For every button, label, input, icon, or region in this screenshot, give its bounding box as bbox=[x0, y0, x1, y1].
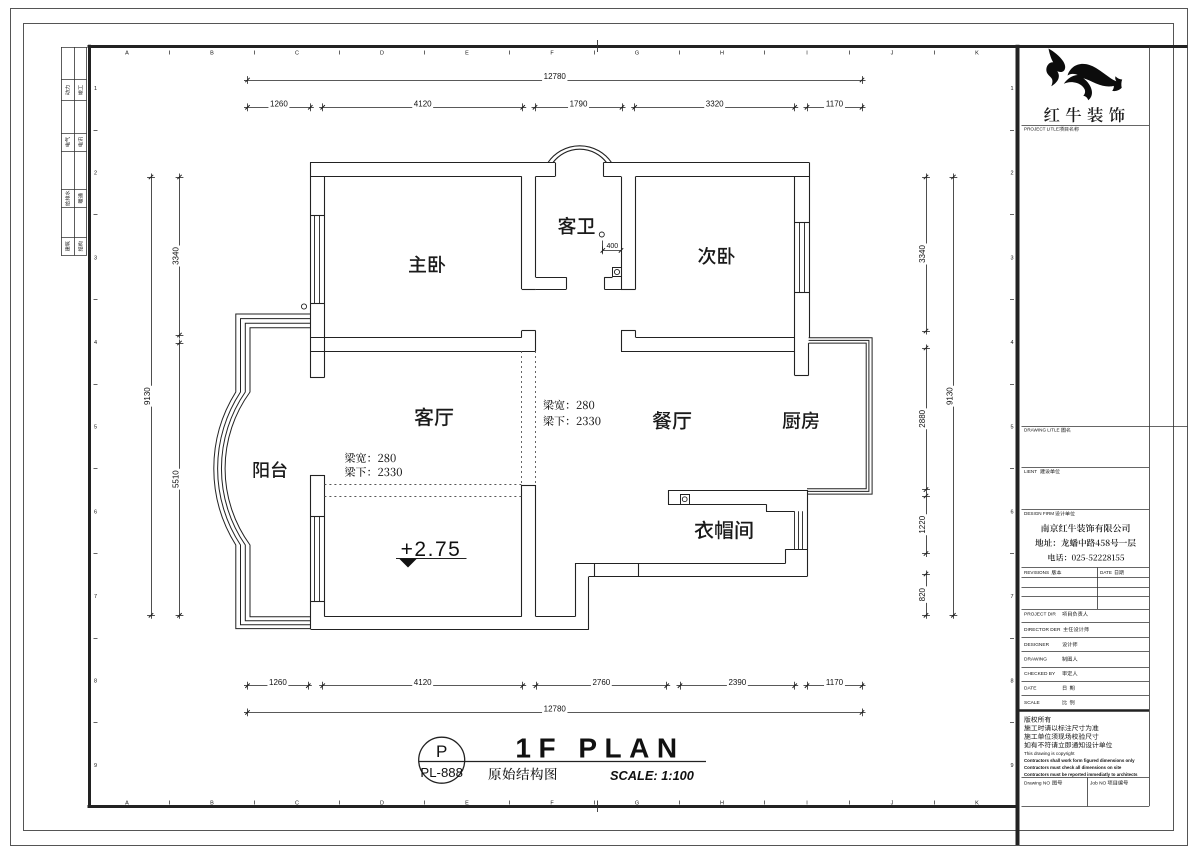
svg-text:PL-888: PL-888 bbox=[420, 765, 463, 780]
svg-text:B: B bbox=[210, 801, 214, 807]
svg-text:3320: 3320 bbox=[706, 100, 724, 109]
svg-text:1: 1 bbox=[94, 86, 97, 92]
svg-text:4: 4 bbox=[94, 340, 97, 346]
svg-text:3: 3 bbox=[1010, 255, 1013, 261]
svg-text:Contractors must be reported i: Contractors must be reported immediatly … bbox=[1024, 772, 1138, 777]
svg-text:5: 5 bbox=[94, 425, 97, 431]
svg-text:H: H bbox=[720, 801, 724, 807]
svg-text:2: 2 bbox=[94, 171, 97, 177]
svg-text:2880: 2880 bbox=[918, 409, 927, 427]
svg-text:A: A bbox=[125, 51, 129, 57]
svg-text:6: 6 bbox=[1010, 509, 1013, 515]
svg-text:SCALE: SCALE bbox=[1024, 700, 1040, 706]
svg-text:PROJECT DIR: PROJECT DIR bbox=[1024, 612, 1056, 618]
svg-text:8: 8 bbox=[94, 679, 97, 685]
svg-text:9: 9 bbox=[94, 763, 97, 769]
svg-text:K: K bbox=[975, 51, 979, 57]
svg-text:LIENT: LIENT bbox=[1024, 469, 1037, 474]
svg-text:PROJECT LITLE: PROJECT LITLE bbox=[1024, 127, 1059, 132]
svg-text:1260: 1260 bbox=[270, 100, 288, 109]
svg-text:G: G bbox=[635, 801, 639, 807]
svg-text:4120: 4120 bbox=[414, 678, 432, 687]
svg-text:CHECKED BY: CHECKED BY bbox=[1024, 671, 1056, 677]
svg-text:3340: 3340 bbox=[172, 247, 181, 265]
svg-text:2760: 2760 bbox=[592, 678, 610, 687]
svg-text:1F PLAN: 1F PLAN bbox=[515, 733, 684, 764]
svg-text:E: E bbox=[465, 801, 469, 807]
svg-text:6: 6 bbox=[94, 509, 97, 515]
svg-text:K: K bbox=[975, 801, 979, 807]
svg-text:4120: 4120 bbox=[414, 100, 432, 109]
svg-text:7: 7 bbox=[1010, 594, 1013, 600]
svg-text:820: 820 bbox=[918, 587, 927, 601]
svg-text:DESIGNER: DESIGNER bbox=[1024, 642, 1050, 648]
svg-text:DESIGN FIRM: DESIGN FIRM bbox=[1024, 511, 1054, 516]
svg-text:DRAWING: DRAWING bbox=[1024, 657, 1047, 663]
svg-text:+2.75: +2.75 bbox=[401, 538, 462, 561]
svg-text:2: 2 bbox=[1010, 171, 1013, 177]
svg-text:This drawing is copyright: This drawing is copyright bbox=[1024, 751, 1075, 756]
svg-text:5510: 5510 bbox=[172, 470, 181, 488]
svg-text:J: J bbox=[891, 51, 894, 57]
svg-text:J: J bbox=[891, 801, 894, 807]
svg-text:9: 9 bbox=[1010, 763, 1013, 769]
svg-text:1790: 1790 bbox=[570, 100, 588, 109]
svg-text:P: P bbox=[436, 742, 447, 761]
svg-text:7: 7 bbox=[94, 594, 97, 600]
svg-text:C: C bbox=[295, 801, 299, 807]
svg-text:D: D bbox=[380, 801, 384, 807]
svg-text:DIRECTOR DER: DIRECTOR DER bbox=[1024, 627, 1061, 633]
svg-text:E: E bbox=[465, 51, 469, 57]
svg-text:5: 5 bbox=[1010, 425, 1013, 431]
svg-text:DRAWING LITLE: DRAWING LITLE bbox=[1024, 428, 1060, 433]
svg-text:SCALE: 1:100: SCALE: 1:100 bbox=[610, 768, 694, 783]
svg-text:1170: 1170 bbox=[826, 100, 844, 109]
svg-text:1170: 1170 bbox=[826, 678, 844, 687]
svg-text:9130: 9130 bbox=[143, 387, 152, 405]
svg-text:Contractors shall work form fi: Contractors shall work form figured dime… bbox=[1024, 758, 1135, 763]
svg-text:Drawing NO: Drawing NO bbox=[1024, 780, 1050, 786]
svg-text:12780: 12780 bbox=[544, 72, 567, 81]
svg-text:B: B bbox=[210, 51, 214, 57]
svg-text:2390: 2390 bbox=[728, 678, 746, 687]
svg-text:REVISIONS: REVISIONS bbox=[1024, 570, 1049, 575]
svg-text:1220: 1220 bbox=[918, 515, 927, 533]
svg-text:D: D bbox=[380, 51, 384, 57]
svg-text:12780: 12780 bbox=[544, 705, 567, 714]
svg-text:Job NO: Job NO bbox=[1090, 780, 1107, 786]
svg-text:DATE: DATE bbox=[1024, 686, 1036, 692]
svg-text:3: 3 bbox=[94, 255, 97, 261]
svg-text:3340: 3340 bbox=[918, 245, 927, 263]
svg-text:DATE: DATE bbox=[1100, 570, 1112, 575]
svg-text:9130: 9130 bbox=[945, 387, 954, 405]
svg-text:8: 8 bbox=[1010, 679, 1013, 685]
svg-text:Contractors must check all dim: Contractors must check all dimensions on… bbox=[1024, 765, 1122, 770]
svg-text:G: G bbox=[635, 51, 639, 57]
svg-text:A: A bbox=[125, 801, 129, 807]
svg-text:4: 4 bbox=[1010, 340, 1013, 346]
svg-text:C: C bbox=[295, 51, 299, 57]
svg-text:1: 1 bbox=[1010, 86, 1013, 92]
svg-text:400: 400 bbox=[606, 243, 618, 250]
svg-text:1260: 1260 bbox=[269, 678, 287, 687]
svg-text:H: H bbox=[720, 51, 724, 57]
